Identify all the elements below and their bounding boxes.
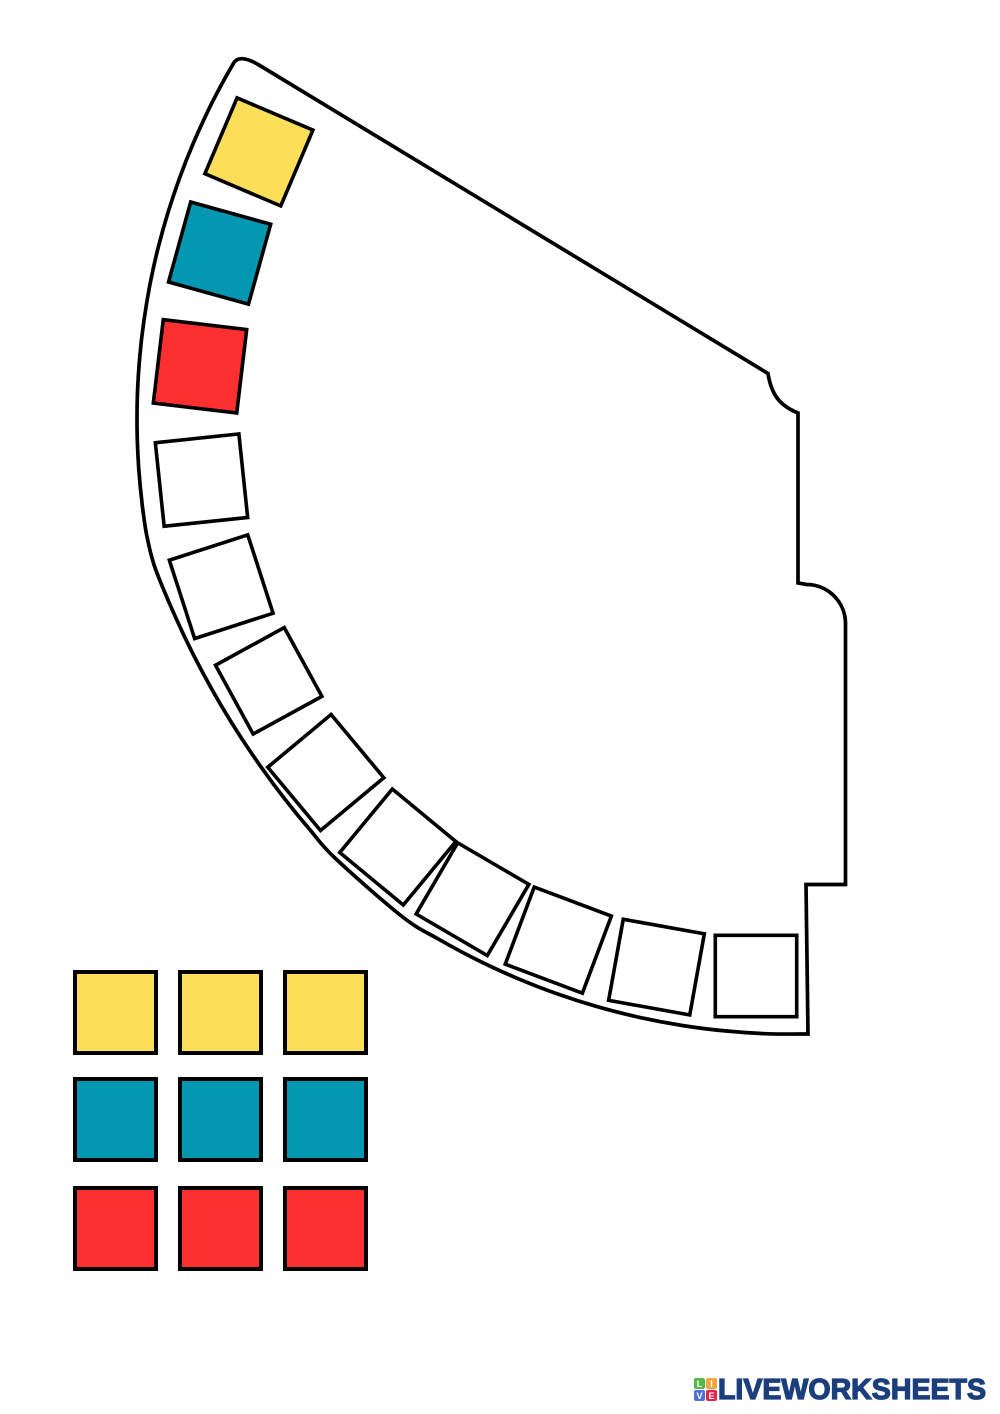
- svg-text:L: L: [697, 1379, 703, 1389]
- svg-text:E: E: [708, 1391, 714, 1401]
- svg-text:I: I: [710, 1379, 713, 1389]
- svg-text:V: V: [696, 1391, 702, 1401]
- svg-text:LIVEWORKSHEETS: LIVEWORKSHEETS: [718, 1374, 986, 1406]
